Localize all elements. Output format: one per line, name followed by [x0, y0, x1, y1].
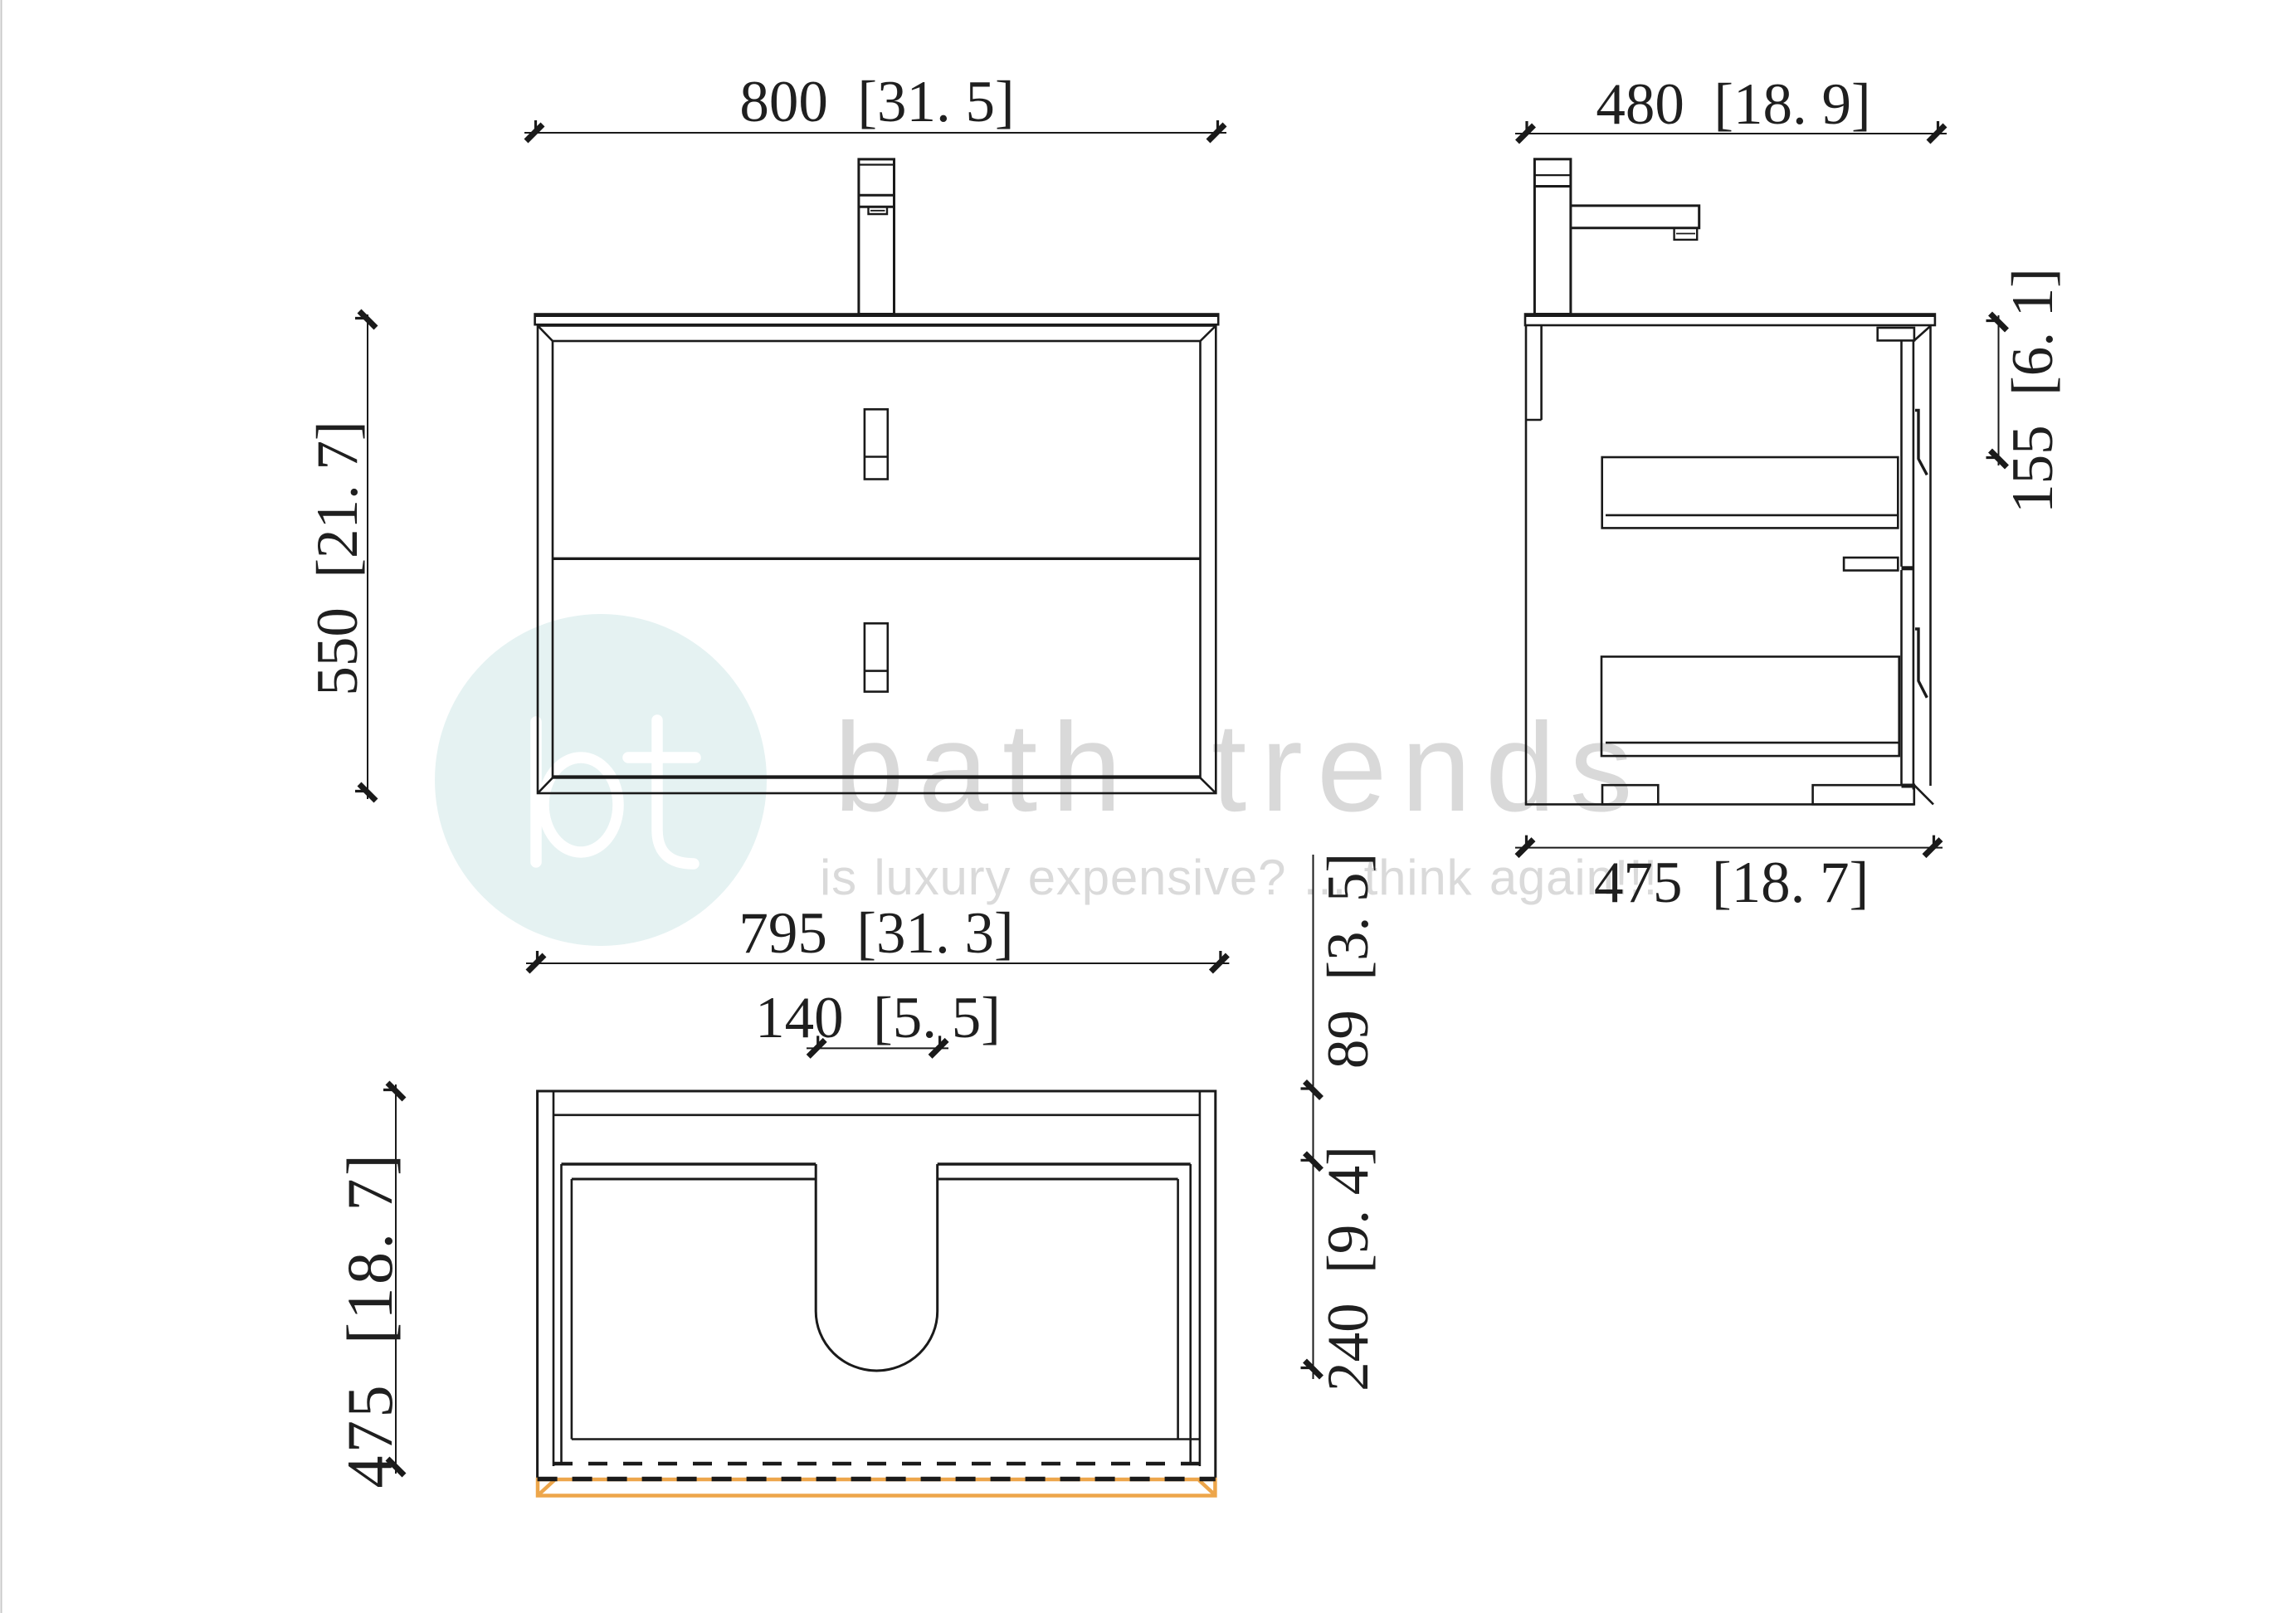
svg-text:480 [18. 9]: 480 [18. 9] [1596, 72, 1870, 137]
svg-text:240 [9. 4]: 240 [9. 4] [1316, 1146, 1381, 1391]
svg-text:800 [31. 5]: 800 [31. 5] [739, 70, 1014, 134]
svg-text:bath trends: bath trends [834, 697, 1647, 838]
svg-text:155 [6. 1]: 155 [6. 1] [2001, 268, 2065, 514]
svg-text:475 [18. 7]: 475 [18. 7] [334, 1152, 406, 1489]
svg-text:is luxury expensive? ... think: is luxury expensive? ... think again!!! [820, 850, 1658, 905]
svg-text:89 [3. 5]: 89 [3. 5] [1316, 853, 1381, 1069]
svg-text:475 [18. 7]: 475 [18. 7] [1594, 850, 1869, 915]
svg-text:550 [21. 7]: 550 [21. 7] [305, 421, 370, 695]
svg-text:140 [5. 5]: 140 [5. 5] [755, 986, 1001, 1050]
svg-text:795 [31. 3]: 795 [31. 3] [739, 901, 1013, 966]
